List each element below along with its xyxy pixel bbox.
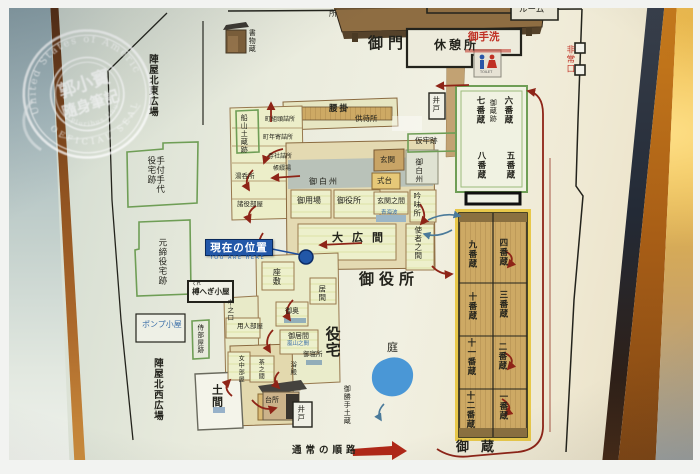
photo-frame: 陣屋北東広場 陣屋北西広場 手付手代役宅跡 元締役宅跡 侍部屋跡 くれ 榑へぎ小… xyxy=(0,0,700,474)
you-are-here-marker: 現在の位置 xyxy=(205,239,273,256)
pond xyxy=(372,357,413,396)
jinya-map-scene: 陣屋北東広場 陣屋北西広場 手付手代役宅跡 元締役宅跡 侍部屋跡 くれ 榑へぎ小… xyxy=(9,8,693,460)
watermark-stamp: United States of America OFFICIAL SEAL E… xyxy=(9,8,192,194)
storehouse-building xyxy=(455,209,531,441)
normal-route-arrow xyxy=(352,441,407,460)
photo-area: 陣屋北東広場 陣屋北西広場 手付手代役宅跡 元締役宅跡 侍部屋跡 くれ 榑へぎ小… xyxy=(9,8,693,460)
kura-ato-box xyxy=(456,86,527,192)
shomotsugura-icon xyxy=(223,22,249,53)
